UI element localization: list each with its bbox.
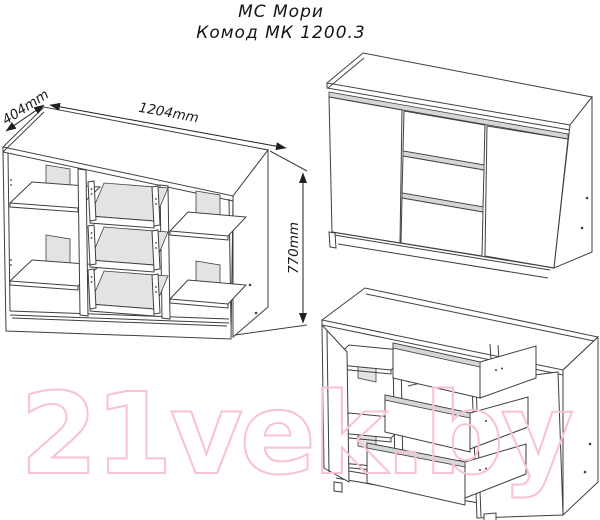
product-drawing-sheet: МС Мори Комод МК 1200.3 [0, 0, 600, 520]
height-label: 770mm [286, 222, 302, 274]
assembled-drawer-fronts [401, 111, 485, 256]
series-title: МС Мори [131, 2, 431, 23]
title-block: МС Мори Комод МК 1200.3 [131, 2, 431, 45]
drawer-box-2 [88, 225, 168, 272]
drawer-box-1 [88, 181, 168, 228]
assembled-view [310, 50, 600, 300]
open-view [298, 286, 600, 520]
open-left-door [322, 325, 349, 492]
carcass-dimension-view: 404mm 1204mm 770mm [0, 85, 312, 351]
model-title: Комод МК 1200.3 [131, 23, 431, 44]
assembled-right-door [485, 126, 568, 268]
drawer-box-3 [88, 269, 168, 316]
assembled-left-door [329, 97, 402, 243]
